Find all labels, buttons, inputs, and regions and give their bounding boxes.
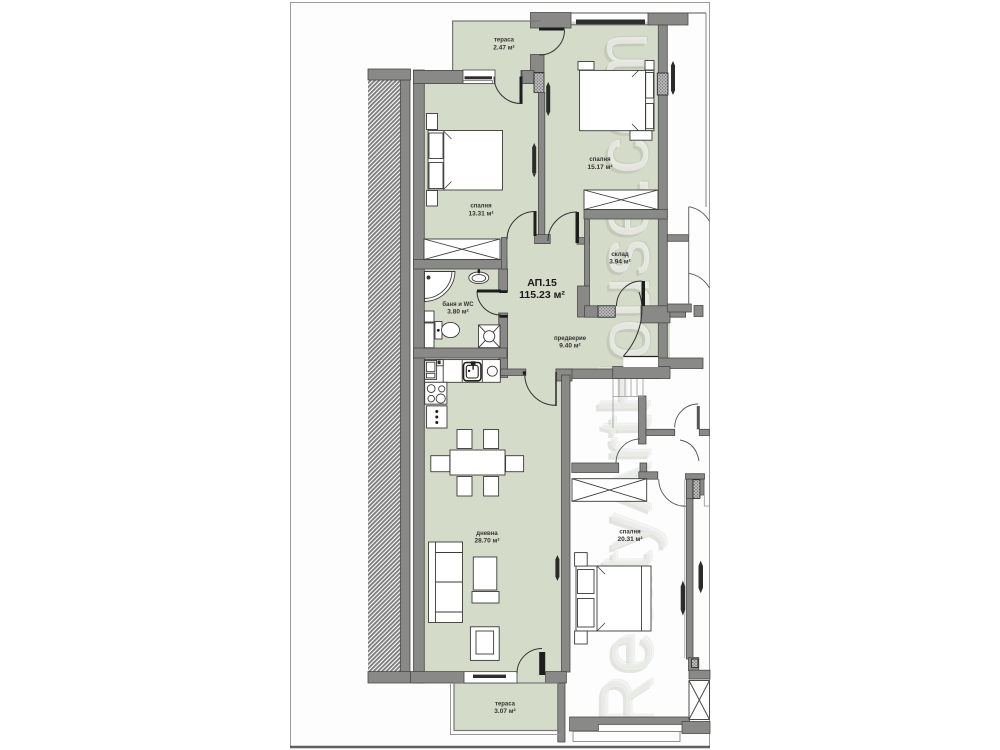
svg-text:115.23 м²: 115.23 м² bbox=[519, 289, 565, 301]
svg-text:3.94 м²: 3.94 м² bbox=[609, 259, 631, 266]
svg-text:спалня: спалня bbox=[470, 204, 492, 210]
svg-text:спалня: спалня bbox=[589, 157, 611, 163]
svg-text:тераса: тераса bbox=[494, 38, 515, 44]
svg-text:28.70 м²: 28.70 м² bbox=[474, 538, 500, 545]
svg-text:2.47 м²: 2.47 м² bbox=[493, 45, 515, 52]
svg-text:20.31 м²: 20.31 м² bbox=[617, 536, 643, 543]
svg-text:3.80 м²: 3.80 м² bbox=[447, 309, 469, 316]
svg-text:13.31 м²: 13.31 м² bbox=[468, 211, 494, 218]
svg-text:15.17 м²: 15.17 м² bbox=[587, 164, 613, 171]
svg-text:спалня: спалня bbox=[619, 530, 641, 536]
svg-text:баня и WC: баня и WC bbox=[442, 301, 474, 308]
svg-text:9.40 м²: 9.40 м² bbox=[559, 343, 581, 350]
svg-text:предверие: предверие bbox=[554, 336, 587, 342]
svg-text:дневна: дневна bbox=[476, 531, 498, 537]
svg-text:3.07 м²: 3.07 м² bbox=[494, 708, 516, 715]
svg-text:тераса: тераса bbox=[495, 702, 516, 708]
svg-text:АП.15: АП.15 bbox=[527, 277, 557, 289]
svg-text:склад: склад bbox=[611, 252, 629, 258]
